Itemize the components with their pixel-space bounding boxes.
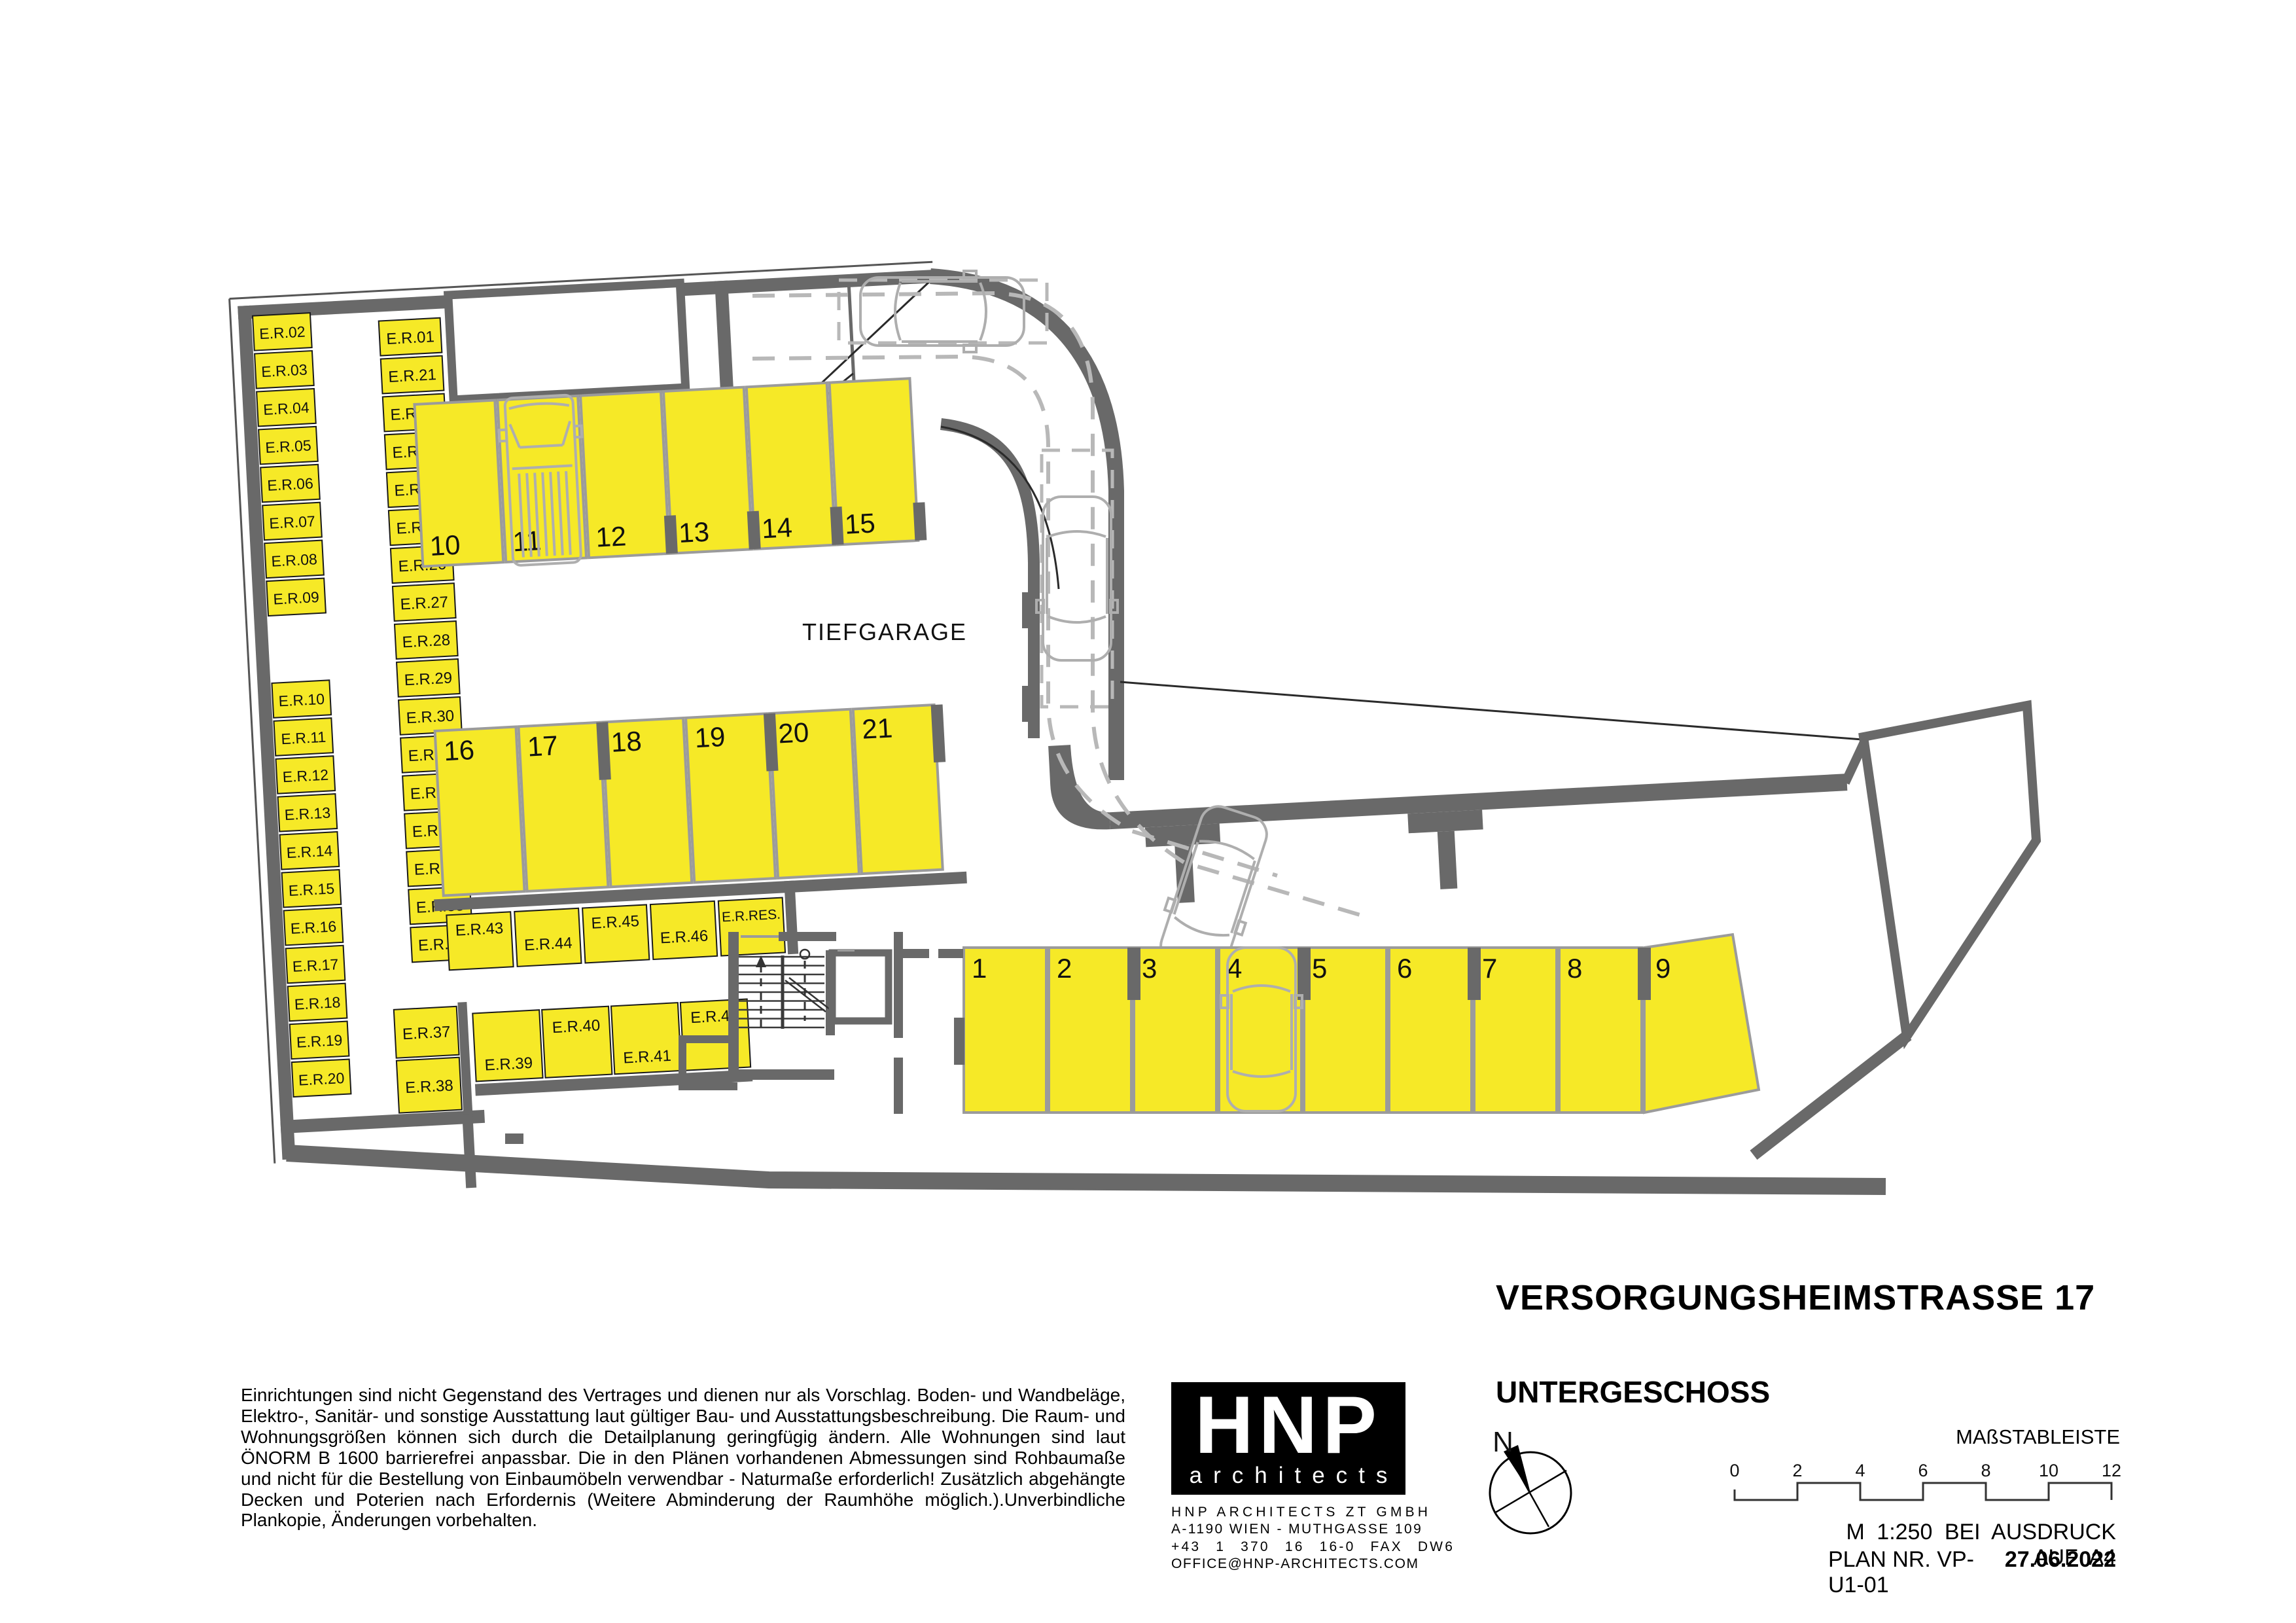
- pillar: [1022, 686, 1035, 722]
- storage-room-label: E.R.15: [288, 880, 335, 899]
- storage-room-label: E.R.09: [273, 588, 320, 608]
- address-line: +43 1 370 16 16-0 FAX DW6: [1171, 1539, 1409, 1556]
- storage-room-label: E.R.19: [296, 1031, 343, 1051]
- elevator: [832, 950, 889, 1021]
- storage-room-label: E.R.21: [388, 366, 437, 386]
- address-line: OFFICE@HNP-ARCHITECTS.COM: [1171, 1556, 1409, 1573]
- plan-subtitle: UNTERGESCHOSS: [1496, 1374, 1770, 1410]
- storage-room-label: E.R.44: [524, 934, 573, 954]
- plan-date: 27.06.2022: [2005, 1547, 2116, 1598]
- parking-stall-number: 6: [1397, 953, 1412, 984]
- north-label: N: [1492, 1426, 1513, 1458]
- storage-room-label: E.R.RES.: [722, 907, 781, 925]
- t-pillar: [1407, 810, 1486, 891]
- storage-room-label: E.R.12: [282, 766, 329, 786]
- wall-slanted-right: [1754, 1035, 1908, 1155]
- storage-room-label: E.R.37: [402, 1023, 451, 1043]
- storage-room-label: E.R.27: [400, 594, 449, 614]
- storage-room-label: E.R.41: [623, 1047, 672, 1067]
- scale-step-line: [1735, 1483, 2111, 1500]
- sight-line: [1120, 682, 1862, 740]
- address-line: A-1190 WIEN - MUTHGASSE 109: [1171, 1521, 1409, 1538]
- stair-treads: [739, 955, 824, 1029]
- parking-stall-number: 15: [844, 507, 876, 539]
- pillar: [1022, 592, 1035, 628]
- scale-tick-label: 4: [1855, 1461, 1865, 1480]
- storage-room-label: E.R.07: [269, 512, 316, 532]
- floor-plan-document: E.R.02E.R.03E.R.04E.R.05E.R.06E.R.07E.R.…: [0, 0, 2296, 1623]
- scale-ticks: 024681012: [1729, 1461, 2121, 1480]
- parking-stall-number: 2: [1057, 953, 1072, 984]
- logo-tagline: architects: [1178, 1463, 1399, 1489]
- logo-name: HNP: [1195, 1388, 1382, 1463]
- storage-room-label: E.R.39: [484, 1054, 533, 1075]
- parking-stall-number: 18: [610, 725, 643, 757]
- wall-segment: [1845, 741, 1865, 783]
- storage-room-label: E.R.11: [281, 728, 327, 748]
- parking-stall-number: 13: [678, 516, 710, 548]
- area-label: TIEFGARAGE: [802, 618, 967, 645]
- compass-axis: [1494, 1471, 1566, 1513]
- wall-storage-bottom: [280, 1110, 485, 1133]
- wall-connector: [462, 1115, 476, 1188]
- storage-room-label: E.R.14: [286, 842, 333, 861]
- parking-stall-number: 5: [1312, 953, 1327, 984]
- plan-number-row: PLAN NR. VP-U1-01 27.06.2022: [1828, 1547, 2116, 1598]
- pillar: [664, 515, 678, 554]
- storage-room-label: E.R.43: [455, 919, 504, 940]
- storage-room-label: E.R.46: [660, 927, 709, 948]
- storage-room-label: E.R.18: [294, 993, 341, 1013]
- pillar: [913, 502, 927, 541]
- parking-stall-number: 10: [429, 529, 461, 562]
- storage-room-label: E.R.20: [298, 1069, 345, 1089]
- parking-stall-number: 16: [443, 734, 475, 766]
- storage-room-label: E.R.40: [552, 1016, 601, 1037]
- storage-room-label: E.R.30: [406, 707, 455, 727]
- storage-room-label: E.R.45: [591, 912, 640, 933]
- parking-stall-number: 19: [694, 721, 726, 753]
- plan-number: PLAN NR. VP-U1-01: [1828, 1547, 2005, 1598]
- parking-stall-number: 3: [1142, 953, 1157, 984]
- scale-tick-label: 6: [1918, 1461, 1928, 1480]
- floor-plan-drawing: E.R.02E.R.03E.R.04E.R.05E.R.06E.R.07E.R.…: [0, 0, 2296, 1623]
- duct-block: [505, 1133, 523, 1144]
- architect-logo: HNP architects: [1171, 1382, 1405, 1495]
- parking-stall-number: 1: [972, 953, 987, 984]
- storage-room: [542, 1007, 612, 1078]
- storage-room-label: E.R.16: [290, 918, 337, 937]
- storage-room-label: E.R.29: [404, 669, 453, 689]
- t-pillar: [1145, 823, 1224, 904]
- parking-stall-number: 21: [861, 712, 893, 744]
- disclaimer-text: Einrichtungen sind nicht Gegenstand des …: [241, 1385, 1125, 1531]
- storage-room-label: E.R.28: [402, 632, 451, 652]
- scale-tick-label: 8: [1981, 1461, 1990, 1480]
- parking-stall-number: 8: [1567, 953, 1582, 984]
- wall-bottom: [287, 1153, 1886, 1186]
- storage-room-label: E.R.17: [292, 955, 339, 975]
- north-compass: N: [1466, 1414, 1610, 1571]
- storage-room-label: E.R.02: [259, 323, 306, 343]
- parking-stall-number: 12: [595, 520, 627, 552]
- storage-room-label: E.R.38: [405, 1077, 454, 1097]
- storage-room-label: E.R.13: [284, 804, 331, 824]
- plan-title: VERSORGUNGSHEIMSTRASSE 17: [1496, 1277, 2095, 1318]
- pillar: [830, 507, 844, 545]
- turning-radius-line: [941, 427, 1059, 589]
- storage-room-label: E.R.10: [278, 690, 325, 710]
- parking-stall-number: 14: [761, 512, 793, 544]
- parking-stall-number: 17: [527, 730, 559, 762]
- storage-37-38: E.R.37E.R.38: [394, 1007, 462, 1113]
- parking-stall-number: 20: [777, 717, 809, 749]
- scale-tick-label: 12: [2102, 1461, 2121, 1480]
- scale-tick-label: 10: [2039, 1461, 2058, 1480]
- scale-bar: 024681012: [1701, 1407, 2159, 1518]
- parking-stall-number: 9: [1655, 953, 1670, 984]
- parking-stall-number: 7: [1482, 953, 1497, 984]
- architect-address: HNP ARCHITECTS ZT GMBH A-1190 WIEN - MUT…: [1171, 1504, 1409, 1573]
- storage-room-label: E.R.03: [261, 361, 308, 380]
- storage-room-label: E.R.01: [386, 328, 435, 348]
- storage-room-label: E.R.08: [271, 550, 318, 570]
- scale-tick-label: 0: [1729, 1461, 1739, 1480]
- storage-room-label: E.R.05: [265, 437, 312, 456]
- wall-right-bay: [1863, 705, 2036, 1037]
- technical-room: [448, 283, 686, 399]
- pillar: [747, 511, 761, 550]
- storage-room-label: E.R.04: [263, 399, 310, 418]
- scale-tick-label: 2: [1792, 1461, 1802, 1480]
- parking-row-16-21: 161718192021: [435, 705, 943, 896]
- wall-stair-right: [894, 932, 963, 1114]
- address-line: HNP ARCHITECTS ZT GMBH: [1171, 1504, 1409, 1521]
- storage-room-label: E.R.06: [267, 474, 314, 494]
